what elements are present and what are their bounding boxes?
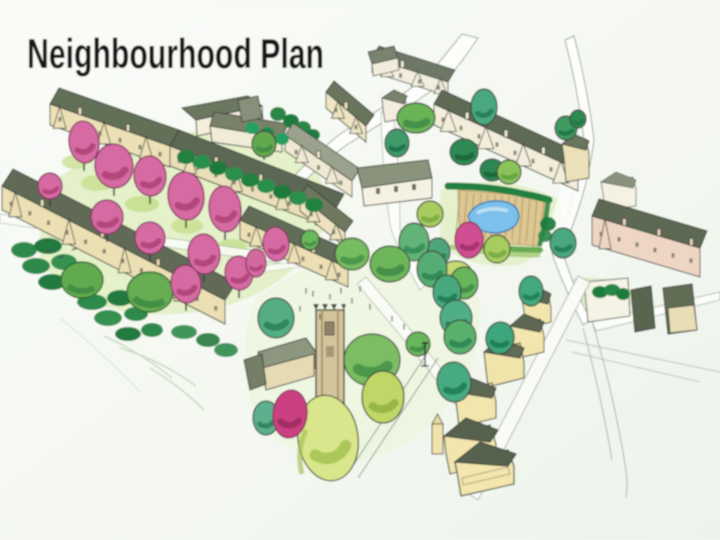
svg-text:Neighbourhood Plan: Neighbourhood Plan [27, 30, 324, 77]
